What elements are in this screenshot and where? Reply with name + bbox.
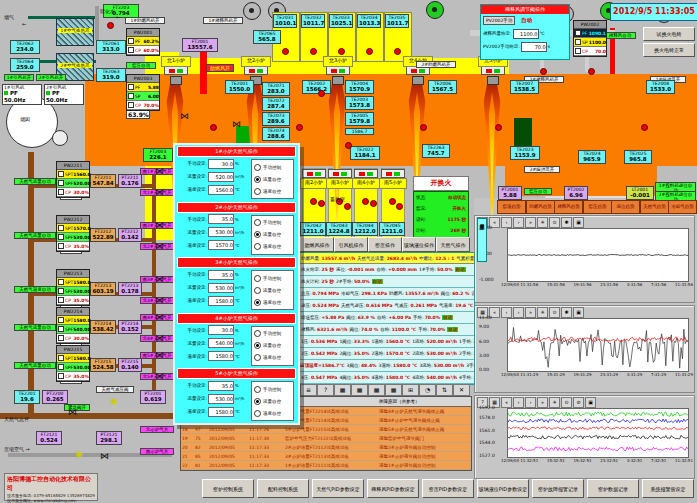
- controller-row: SP6.00: [127, 92, 159, 101]
- mode-radio[interactable]: 流量自控: [254, 284, 291, 296]
- grid-segment: 总压:: [301, 291, 312, 296]
- process-data-grid: 助燃风量:13557.6 m³/h天然气总流量:2683.4 m³/h空燃比:1…: [298, 252, 475, 385]
- controller-row: SPT1570.0: [57, 224, 89, 233]
- param-value: 530.00: [73, 289, 90, 294]
- bottom-nav-button[interactable]: 窑炉数据记录: [587, 479, 639, 498]
- instrument-value: PF 50.0Hz: [4, 90, 40, 103]
- trend-button[interactable]: 液位趋势: [611, 200, 640, 214]
- instrument-value: 1013.3: [359, 20, 379, 27]
- setting-input[interactable]: 30.0: [208, 159, 234, 169]
- instrument-value: 1011.7: [303, 20, 323, 27]
- table-toolbar-button[interactable]: ▦: [385, 384, 402, 396]
- alarm-cell: 11:17:33: [248, 445, 284, 450]
- x-axis-tick-label: 11:32:51: [675, 458, 693, 463]
- y-axis-tick: 11.00: [479, 315, 492, 320]
- controller-row: PF60.2%: [127, 37, 159, 46]
- decor-shape: [95, 6, 99, 40]
- grid-segment: 520.00 m³/h: [427, 339, 457, 344]
- controller-row: CP30.0%: [57, 188, 89, 197]
- table-toolbar-button[interactable]: ⇅: [436, 384, 453, 396]
- unit-label: ℃: [235, 354, 240, 359]
- chart-toolbar-button[interactable]: ›: [513, 307, 524, 318]
- grid-segment: -0.001 mm: [347, 267, 374, 272]
- grid-segment: 1570.0 ℃: [386, 351, 410, 356]
- damper-status-box: [302, 169, 326, 178]
- mode-radio[interactable]: 手动控制: [254, 328, 291, 340]
- param-name: SPF: [65, 181, 73, 186]
- setting-input[interactable]: 1580.0: [208, 296, 234, 306]
- x-axis-labels: 12/09/04 11:31:2915:31:2919:31:2923:31:2…: [501, 372, 693, 377]
- instrument-box: 1#引风机PF 50.0Hz: [2, 84, 42, 105]
- dilution-manual-unit: s: [548, 44, 550, 49]
- instrument-value: 283.0: [264, 88, 288, 95]
- grid-segment: 自动: [442, 315, 453, 320]
- instrument-box: FT2213603.19: [90, 282, 116, 296]
- grid-segment: 2手给:: [459, 351, 472, 356]
- instrument-box: 1#引风机开: [4, 74, 34, 81]
- static-label: ←: [22, 21, 26, 27]
- instrument-box: TE2025965.8: [624, 150, 652, 164]
- bottom-nav-button[interactable]: 天然气PID参数设定: [312, 479, 364, 498]
- param-value: 60.0%: [143, 48, 159, 53]
- alarm-cell: 81: [194, 463, 208, 468]
- instrument-value: 234.0: [12, 46, 38, 53]
- grid-segment: 25 秒: [322, 279, 334, 284]
- param-checkbox: [575, 39, 581, 45]
- chart-toolbar-button[interactable]: ⊙: [549, 307, 560, 318]
- trend-button[interactable]: 天然气趋势: [640, 200, 669, 214]
- grid-segment: 阀位:: [346, 315, 357, 320]
- table-toolbar-button[interactable]: ▦: [368, 384, 385, 396]
- bottom-nav-button[interactable]: 玻璃液位PID参数设定: [477, 479, 529, 498]
- controller-tag: PW2211: [57, 162, 89, 170]
- grid-segment: 4压:: [301, 375, 310, 380]
- y-axis-tick: -1.000: [479, 277, 494, 282]
- mode-radio-group: 手动控制流量自控温度自控: [251, 159, 294, 199]
- alarm-cell: 20: [181, 445, 194, 450]
- y-axis-tick: 9.00: [479, 324, 489, 329]
- controller-row: SPT1580.0: [57, 354, 89, 363]
- setting-row: 流量设定:540.00m³/h: [177, 337, 249, 350]
- instrument-value: 287.4: [264, 103, 288, 110]
- mode-radio[interactable]: 温度自控: [254, 352, 291, 364]
- chart-toolbar-button[interactable]: ▣: [573, 217, 584, 228]
- mode-radio[interactable]: 手动控制: [254, 161, 291, 173]
- trend-button[interactable]: 稀释风趋势: [554, 200, 583, 214]
- north-port-label: 北2小炉: [241, 56, 271, 67]
- pv2002-manual-button[interactable]: PV2002手动: [483, 16, 515, 25]
- setting-input[interactable]: 35.0: [208, 270, 234, 280]
- param-name: CP: [65, 374, 71, 379]
- grid-segment: 气减压:: [395, 303, 410, 308]
- operation-button[interactable]: 天然气操作: [436, 237, 470, 252]
- param-value: 35.0%: [73, 374, 89, 379]
- alarm-row[interactable]: 22812012/09/0511:17:331#小炉油量FT2111过高或过低调…: [181, 461, 471, 470]
- setting-input[interactable]: 530.00: [208, 394, 234, 404]
- controller-row: CP30.0%: [57, 334, 89, 343]
- radio-circle: [254, 231, 261, 238]
- grid-segment: 50.0%: [437, 267, 453, 272]
- burner-nozzle: [170, 76, 182, 85]
- x-axis-tick-label: 19:31:29: [574, 372, 592, 377]
- instrument-box: FT2215524.58: [90, 358, 116, 372]
- controller-row: CP35.0%: [57, 372, 89, 381]
- table-toolbar-button[interactable]: ≡: [300, 384, 317, 396]
- unit-label: m³/h: [235, 396, 244, 401]
- grid-segment: 2#手给:: [336, 279, 353, 284]
- bottom-nav-button[interactable]: 配料控制系统: [257, 479, 309, 498]
- param-value: 1090.1: [589, 31, 606, 36]
- pid-controller: PW2211SPT1560.0SPF520.00CP30.0%: [56, 161, 90, 198]
- mode-radio[interactable]: 温度自控: [254, 407, 291, 419]
- x-axis-tick-label: 19:32:51: [574, 458, 592, 463]
- bottom-nav-button[interactable]: 窑炉控制系统: [202, 479, 254, 498]
- setting-input[interactable]: 540.00: [208, 338, 234, 348]
- bottom-nav-button[interactable]: 窑炉故障报警记录: [532, 479, 584, 498]
- grid-segment: 50.0%: [354, 279, 370, 284]
- chart-toolbar-button[interactable]: ‹: [513, 397, 524, 408]
- setting-input[interactable]: 35.0: [208, 214, 234, 224]
- red-indicator: [386, 172, 392, 176]
- radio-label: 手动控制: [263, 165, 281, 170]
- x-axis-labels: 12/09/04 11:31:5615:31:5619:31:5623:31:5…: [501, 282, 693, 287]
- data-grid-row: 4压:0.547 MPa4阀位:35.0%4温给:1580.0 ℃4流给:540…: [299, 372, 474, 384]
- alarm-cell: 75: [194, 436, 208, 441]
- param-name: CP: [65, 298, 71, 303]
- alarm-dot-indicator: [389, 198, 396, 205]
- table-toolbar-button[interactable]: ▦: [334, 384, 351, 396]
- unit-label: %: [235, 161, 239, 166]
- mode-radio[interactable]: 温度自控: [254, 241, 291, 253]
- mode-radio[interactable]: 流量自控: [254, 395, 291, 407]
- static-label: 蓄热室: [330, 196, 345, 202]
- chart-toolbar-button[interactable]: ⊙: [549, 217, 560, 228]
- instrument-box: PT20026.96: [564, 186, 588, 200]
- instrument-box: 63.9%: [126, 110, 150, 119]
- instrument-box: TE220119.6: [14, 390, 40, 404]
- chart-toolbar-button[interactable]: ›: [513, 217, 524, 228]
- status-value: 269 秒: [451, 228, 466, 233]
- alarm-row[interactable]: ▶23832012/09/0511:17:332#小炉油量FT2112过高或过低…: [181, 470, 471, 471]
- controller-row: CP70.0: [574, 47, 606, 56]
- instrument-value: 0.619: [142, 396, 164, 403]
- trend-button[interactable]: 助燃风趋势: [526, 200, 555, 214]
- green-indicator: [419, 69, 425, 73]
- table-toolbar-button[interactable]: ✕: [453, 384, 470, 396]
- green-indicator: [367, 172, 373, 176]
- valve-icon: ⋈: [155, 296, 164, 305]
- param-value: 70.0: [595, 49, 606, 54]
- grid-segment: 3流给:: [419, 363, 432, 368]
- grid-segment: 19.6 ℃: [455, 303, 473, 308]
- mode-radio[interactable]: 温度自控: [254, 296, 291, 308]
- grid-segment: 自动: [372, 279, 383, 284]
- status-value: 开换火: [453, 206, 467, 211]
- bottom-nav-button[interactable]: 窑压PID参数设定: [422, 479, 474, 498]
- valve-icon: ◉: [110, 397, 118, 406]
- instrument-box: TE20331025.1: [329, 14, 353, 28]
- mode-radio[interactable]: 手动控制: [254, 272, 291, 284]
- param-checkbox: [58, 297, 64, 303]
- instrument-value: 0.142: [120, 234, 140, 241]
- south-port-label: 南4小炉: [352, 178, 380, 189]
- instrument-value: 603.19: [92, 288, 114, 295]
- status-key: 计时:: [416, 228, 427, 233]
- status-value: 自动状态: [448, 195, 466, 200]
- instrument-box: TE2073289.6: [262, 112, 290, 126]
- param-checkbox: [58, 326, 64, 332]
- alarm-cell: 2012/09/05: [208, 445, 248, 450]
- pid-controller: PW2214SPT1580.0SPF540.00CP30.0%: [56, 307, 90, 344]
- radio-label: 流量自控: [263, 177, 281, 182]
- bell-normal-button[interactable]: 换火电铃正常: [643, 43, 695, 57]
- x-axis-tick-label: 23:32:51: [600, 458, 618, 463]
- green-indicator: [257, 69, 263, 73]
- instrument-value: 1211.0: [381, 228, 403, 235]
- damper-status-box: [244, 66, 268, 75]
- x-axis-tick-label: 7:31:29: [651, 372, 666, 377]
- chart-toolbar-button[interactable]: ▣: [573, 307, 584, 318]
- burner-nozzle: [332, 76, 344, 85]
- instrument-value: 547.84: [92, 180, 114, 187]
- chart-toolbar-button[interactable]: ‹: [501, 217, 512, 228]
- dilution-manual-input[interactable]: 70.0: [521, 42, 547, 52]
- south-port-label: 南2小炉: [300, 178, 328, 189]
- instrument-box: PT22110.176: [118, 174, 142, 188]
- alarm-row[interactable]: 18972012/09/0511:17:265#小炉气量FT2215过高或过低调…: [181, 425, 471, 434]
- setting-input[interactable]: 1580.0: [208, 351, 234, 361]
- controller-row: SPT1580.0: [57, 278, 89, 287]
- param-checkbox: [58, 225, 64, 231]
- radio-label: 温度自控: [263, 411, 281, 416]
- instrument-value: 5.88: [500, 192, 520, 199]
- setting-label: 手动设定:: [177, 272, 207, 277]
- data-grid-row: 2压:0.542 MPa2阀位:35.0%2温给:1570.0 ℃2流给:530…: [299, 348, 474, 360]
- trend-button[interactable]: 窑温趋势: [497, 200, 526, 214]
- trend-chart-3: ?▦«‹›»✳⊙⊘▣1592.01578.01561.01544.01527.0…: [474, 395, 695, 479]
- mode-radio[interactable]: 手动控制: [254, 383, 291, 395]
- instrument-box: PT22000.265: [42, 390, 68, 404]
- operation-button[interactable]: 助燃风操作: [300, 237, 334, 252]
- instrument-box: PT22140.152: [118, 320, 142, 334]
- static-label: 天然气总管: [4, 416, 29, 422]
- unit-label: m³/h: [235, 285, 244, 290]
- fan-icon: [426, 1, 444, 19]
- chart-toolbar-button[interactable]: ›: [525, 397, 536, 408]
- instrument-box: 窑压自动: [126, 62, 156, 69]
- data-grid-row: 碹顶温度=1586.7℃3阀位:48.4%3温给:1580.0 ℃3流给:530…: [299, 360, 474, 372]
- bottom-nav-button[interactable]: 稀释风PID参数设定: [367, 479, 419, 498]
- param-value: 60.2%: [143, 39, 159, 44]
- param-name: PF: [582, 31, 587, 36]
- param-name: CP: [582, 49, 588, 54]
- instrument-box: TE20041570.9: [345, 80, 374, 94]
- x-axis-tick-label: 3:32:51: [627, 458, 642, 463]
- alarm-cell: 调整2#小炉调节阀自动控制: [378, 445, 471, 450]
- grid-segment: 0.547 MPa: [311, 375, 338, 380]
- green-indicator: [494, 69, 500, 73]
- grid-segment: 540.00 m³/h: [427, 375, 457, 380]
- mode-radio[interactable]: 流量自控: [254, 173, 291, 185]
- dilution-manual-label: PV2002手动给定:: [483, 44, 520, 49]
- setting-row: 手动设定:30.0%: [177, 324, 249, 337]
- table-toolbar-button[interactable]: ⊞: [402, 384, 419, 396]
- chart-toolbar-button[interactable]: ✱: [561, 307, 572, 318]
- instrument-box: TE20451211.0: [379, 222, 405, 236]
- damper-status-box: [381, 169, 405, 178]
- param-checkbox: [128, 93, 134, 99]
- alarm-cell: 21: [181, 454, 194, 459]
- bottom-nav-button[interactable]: 系统报警值设定: [642, 479, 694, 498]
- setting-input[interactable]: 30.0: [208, 325, 234, 335]
- setting-input[interactable]: 1570.0: [208, 240, 234, 250]
- alarm-dot-indicator: [282, 48, 289, 55]
- grid-segment: 4阀位:: [339, 375, 352, 380]
- grid-segment: 48.4%: [361, 363, 377, 368]
- instrument-value: -0.001: [628, 192, 652, 199]
- dilution-mode-value: 自动: [521, 17, 532, 24]
- alarm-row[interactable]: 19752012/09/0511:17:30窑炉空气压力FT2122过高或过低调…: [181, 434, 471, 443]
- unit-label: ℃: [235, 409, 240, 414]
- chart-toolbar-button[interactable]: »: [537, 397, 548, 408]
- instrument-value: 0.176: [120, 180, 140, 187]
- chart-toolbar-button[interactable]: ‹: [501, 307, 512, 318]
- alarm-cell: 调整4#小炉空气调节阀或止阀: [378, 418, 471, 423]
- red-indicator: [359, 172, 365, 176]
- mode-radio[interactable]: 流量自控: [254, 229, 291, 241]
- unit-label: ℃: [235, 187, 240, 192]
- radio-circle: [254, 410, 261, 417]
- setting-row: 温度设定:1560.0℃: [177, 183, 249, 196]
- chart-toolbar-button[interactable]: ✳: [537, 307, 548, 318]
- controller-row: SPF530.00: [57, 363, 89, 372]
- grid-segment: 298.1 KPa: [362, 291, 388, 296]
- mode-radio[interactable]: 流量自控: [254, 340, 291, 352]
- burner-control-section: 4#小炉天然气操作手动设定:30.0%流量设定:540.00m³/h温度设定:1…: [177, 313, 296, 368]
- instrument-value: 1566.2: [304, 86, 329, 93]
- grid-segment: 冷却气压:: [341, 291, 361, 296]
- instrument-value: 1224.8: [328, 228, 350, 235]
- controller-tag: PW2001: [127, 29, 159, 37]
- radio-label: 流量自控: [263, 343, 281, 348]
- chart-toolbar-button[interactable]: »: [525, 217, 536, 228]
- alarm-row[interactable]: 21852012/09/0511:17:333#小炉油量FT2113过高或过低调…: [181, 452, 471, 461]
- scada-furnace-screen: 2012/9/5 11:33:05 稀释风调节阀操作 PV2002手动 自动 稀…: [0, 0, 697, 503]
- instrument-box: TE2074288.6: [262, 127, 290, 141]
- alarm-row[interactable]: 20822012/09/0511:17:332#小炉油量FT2112过高或过低调…: [181, 443, 471, 452]
- setting-input[interactable]: 530.00: [208, 283, 234, 293]
- alarm-cell: 调整1#小炉调节阀自动控制: [378, 463, 471, 468]
- instrument-box: FT2212522.89: [90, 228, 116, 242]
- chart-toolbar-button[interactable]: »: [525, 307, 536, 318]
- grid-segment: 70.0%: [425, 315, 441, 320]
- operation-button[interactable]: 引风机操作: [334, 237, 368, 252]
- alarm-cell: 调整3#小炉调节阀自动控制: [378, 454, 471, 459]
- y-axis-tick: 3.00: [479, 353, 489, 358]
- chart-toolbar-button[interactable]: ⊙: [561, 397, 572, 408]
- grid-segment: 2阀位:: [339, 351, 352, 356]
- table-toolbar-button[interactable]: ▦: [351, 384, 368, 396]
- alarm-dot-indicator: [588, 68, 595, 75]
- valve-icon: ⋈: [100, 452, 109, 461]
- damper-status-box: [164, 66, 188, 75]
- setting-input[interactable]: 1580.0: [208, 407, 234, 417]
- grid-segment: +6.00 Pa: [388, 315, 411, 320]
- setting-input[interactable]: 35.0: [208, 381, 234, 391]
- vendor-website: 技术服务网址: www.chinabdmg.com: [7, 498, 95, 503]
- controller-row: PF5.88: [127, 83, 159, 92]
- alarm-dot-indicator: [641, 124, 648, 131]
- valve-icon: ⋈: [155, 242, 164, 251]
- instrument-box: TE2263745.7: [422, 144, 450, 158]
- grid-segment: 气温度:: [439, 303, 454, 308]
- summary-segment: 12.5 : 1: [435, 256, 454, 261]
- red-indicator: [486, 69, 492, 73]
- radio-label: 温度自控: [263, 300, 281, 305]
- trend-button[interactable]: 窑压趋势: [583, 200, 612, 214]
- grid-segment: 1阀位:: [339, 339, 352, 344]
- test-bell-button[interactable]: 试换火电铃: [643, 27, 695, 41]
- chart-toolbar-button[interactable]: ✳: [537, 217, 548, 228]
- param-name: SPF: [65, 327, 73, 332]
- param-value: 30.0%: [73, 190, 89, 195]
- dilution-setpoint-input[interactable]: 1100.0: [513, 29, 539, 39]
- grid-segment: 33.3%: [354, 339, 370, 344]
- alarm-cell: 1#小炉油量FT2111过高或过低: [284, 463, 378, 468]
- grid-segment: 6321.6 m³/h: [317, 327, 347, 332]
- mode-radio[interactable]: 手动控制: [254, 217, 291, 229]
- heat-exchanger-label: 2#空气换热器: [58, 63, 92, 68]
- chart-toolbar-button[interactable]: ▣: [585, 397, 596, 408]
- trend-button[interactable]: 冷却气趋势: [668, 200, 697, 214]
- alarm-dot-indicator: [394, 48, 401, 55]
- section-title: 2#小炉天然气操作: [177, 202, 296, 213]
- table-toolbar-button[interactable]: ◔: [419, 384, 436, 396]
- chart-toolbar-button[interactable]: ⊘: [573, 397, 584, 408]
- unit-label: ℃: [235, 298, 240, 303]
- vendor-name: 洛阳博德工控自动化技术有限公司: [7, 475, 95, 493]
- instrument-value: 313.0: [98, 46, 124, 53]
- instrument-box: 窑压自动: [524, 188, 552, 195]
- chart-toolbar-button[interactable]: «: [501, 397, 512, 408]
- setting-row: 流量设定:520.00m³/h: [177, 170, 249, 183]
- operation-button[interactable]: 窑压操作: [368, 237, 402, 252]
- x-axis-tick-label: 11:31:56: [675, 282, 693, 287]
- fan-icon: [243, 2, 261, 20]
- controller-row: SP1100.0: [574, 38, 606, 47]
- setting-label: 手动设定:: [177, 328, 207, 333]
- setting-input[interactable]: 520.00: [208, 172, 234, 182]
- instrument-box: TE20031573.8: [345, 96, 374, 110]
- param-checkbox: [58, 288, 64, 294]
- setting-input[interactable]: 530.00: [208, 227, 234, 237]
- setting-input[interactable]: 1560.0: [208, 185, 234, 195]
- grid-segment: 60.2 %: [452, 291, 469, 296]
- unit-label: ℃: [235, 243, 240, 248]
- param-value: 6.00: [148, 94, 159, 99]
- instrument-value: 1011.7: [387, 20, 407, 27]
- instrument-box: 天然气减压阀: [96, 386, 134, 393]
- chart-toolbar-button[interactable]: ✳: [549, 397, 560, 408]
- instrument-value: 1184.1: [352, 152, 378, 159]
- mode-radio[interactable]: 温度自控: [254, 185, 291, 197]
- chart-toolbar-button[interactable]: ✱: [561, 217, 572, 228]
- table-toolbar-button[interactable]: ?: [317, 384, 334, 396]
- fire-change-button[interactable]: 开换火: [413, 176, 469, 191]
- instrument-value: 1538.5: [512, 86, 537, 93]
- operation-button[interactable]: 玻璃液位操作: [402, 237, 436, 252]
- status-value: 1175 秒: [447, 217, 466, 222]
